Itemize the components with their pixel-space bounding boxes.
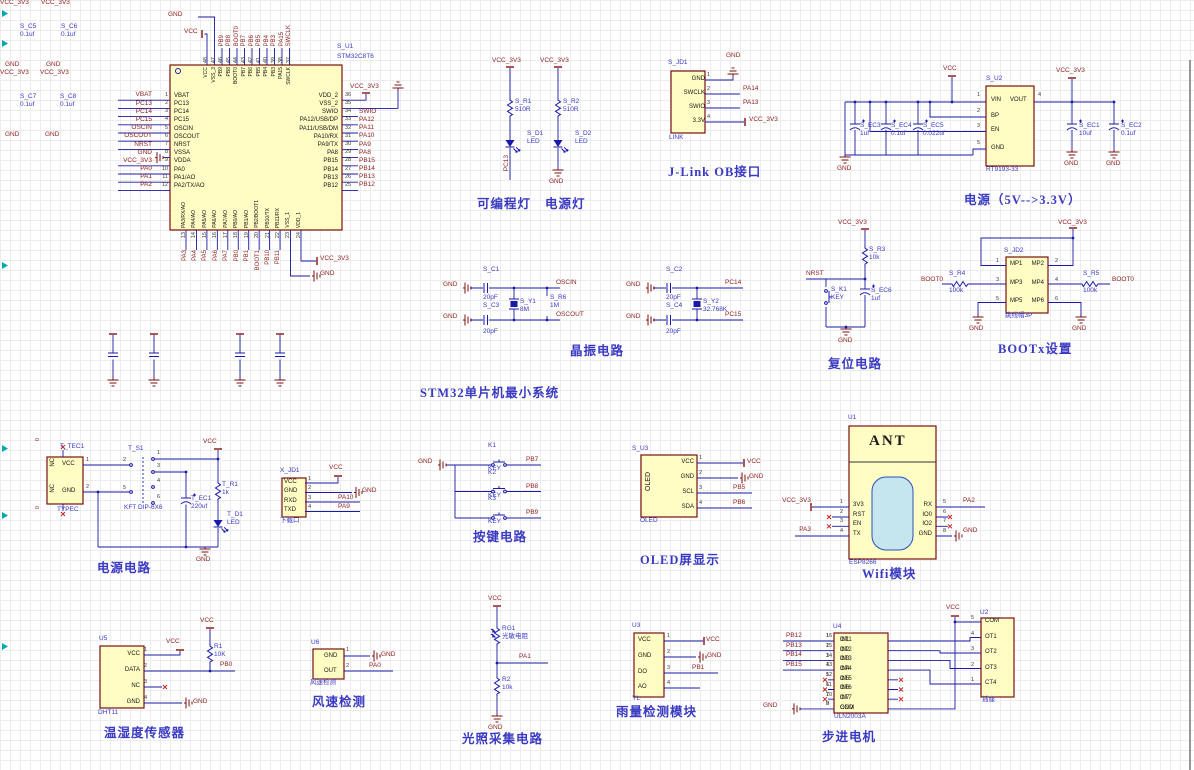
refdes-label: U3 — [632, 623, 640, 630]
net-label: BOOT1 — [255, 250, 261, 270]
pin-name: SCL — [682, 489, 694, 495]
net-label: PA10 — [359, 133, 374, 140]
pin-number: 11 — [162, 175, 168, 181]
pin-name: PA10/RX — [314, 134, 338, 140]
net-label: PB6 — [249, 35, 255, 46]
value-label: LED — [527, 139, 540, 146]
value-label: 10k — [869, 255, 879, 262]
pin-number: 22 — [276, 232, 282, 238]
jlink-pin-rows: GND1SWCLK2PA14SWIO3PA133.3V4 — [671, 72, 766, 128]
pin-name: NRST — [174, 142, 190, 148]
pin-name: PC15 — [174, 117, 189, 123]
net-label: PA4 — [192, 250, 198, 261]
net-label: GND — [549, 179, 563, 186]
pin-number: 29 — [345, 150, 351, 156]
section-caption: 温湿度传感器 — [104, 727, 185, 740]
mcu-top-pin-names: VCCVSS_3PB9PB8BOOT0PB7PB6PB5PB4PB3PA15SW… — [203, 67, 293, 107]
net-label: GND — [45, 132, 59, 139]
pin-number: 1 — [346, 648, 349, 654]
net-label: PB0 — [220, 662, 232, 669]
pin-name: BP — [991, 113, 999, 119]
bootx-jumper-rows: 1MP1MP223MP3MP445MP5MP66 — [1006, 257, 1048, 313]
part-label: DHT11 — [98, 710, 118, 717]
pin-number: 1 — [86, 458, 89, 464]
net-label: VCC_3V3 — [0, 0, 29, 7]
pin-name: PA12/USB/DP — [300, 117, 338, 123]
net-label: PA9 — [359, 142, 371, 149]
net-label: PA9 — [338, 504, 350, 511]
component-name: LINK — [669, 135, 683, 142]
pin-name: GND — [324, 653, 337, 659]
pin-number: 18 — [234, 232, 240, 238]
net-label: BOOT0 — [1112, 277, 1134, 284]
refdes-label: S_C6 — [61, 24, 77, 31]
net-label: VCC_3V3 — [40, 70, 69, 77]
pin-name: VOUT — [1010, 97, 1027, 103]
pin-number: 35 — [345, 101, 351, 107]
refdes-label: RG1 — [502, 626, 515, 633]
pin-number: 30 — [345, 142, 351, 148]
refdes-label: S_R1 — [515, 99, 531, 106]
pin-number: 6 — [1055, 297, 1058, 303]
pin-number: 23 — [286, 232, 292, 238]
net-label: PA10 — [338, 495, 353, 502]
section-caption: 复位电路 — [828, 358, 882, 371]
net-label: VCC — [166, 639, 180, 646]
part-label: RT9193-33 — [986, 167, 1018, 174]
net-label: PB13 — [786, 643, 802, 650]
net-label: PA1 — [140, 174, 152, 181]
pin-name: OT2 — [985, 649, 997, 655]
net-label: SWCLK — [286, 25, 292, 46]
pin-name: PA2/TX/AO — [174, 183, 205, 189]
pin-name: EN — [991, 127, 999, 133]
pin-number: 4 — [667, 681, 670, 687]
pin-number: 5 — [165, 126, 168, 132]
wifi-right-nets: PA2GND — [936, 502, 1006, 541]
pin-name: PA5/AO — [203, 210, 208, 228]
pin-number: 12 — [162, 183, 168, 189]
net-label: PB7 — [526, 457, 538, 464]
value-label: 1M — [550, 303, 559, 310]
pin-name: VCC — [638, 637, 651, 643]
pin-number: 4 — [840, 529, 843, 535]
net-label: GND — [838, 338, 852, 345]
pin-name: PB11/RX — [276, 208, 281, 228]
pin-number: 39 — [272, 57, 278, 63]
pin-name: VCC — [62, 461, 75, 467]
pin-number: 1 — [308, 477, 311, 483]
net-label: BOOT0 — [234, 26, 240, 46]
net-label: PB11 — [275, 250, 281, 264]
pin-number: 37 — [287, 57, 293, 63]
section-caption: 风速检测 — [312, 696, 366, 709]
pin-number: 5 — [123, 486, 126, 492]
value-label: KEY — [831, 295, 844, 302]
dht-pin-rows: VCC1DATA2NC3GND4 — [100, 647, 160, 711]
part-label: STM32C8T6 — [337, 54, 374, 61]
pin-number: 2 — [308, 486, 311, 492]
value-label: 20pF — [666, 329, 681, 336]
component-name: 下载口 — [280, 518, 300, 525]
pin-number: 3 — [971, 647, 974, 653]
net-label: VCC_3V3 — [320, 256, 349, 263]
pin-name: NC — [50, 484, 56, 493]
pin-name: GND — [991, 145, 1004, 151]
refdes-label: S_C3 — [483, 303, 499, 310]
net-label: PB12 — [786, 633, 802, 640]
refdes-label: S_EC5 — [923, 123, 944, 130]
pin-name: SWCLK — [287, 67, 292, 85]
pin-number: 1 — [977, 93, 980, 99]
pin-name: PA0 — [174, 167, 185, 173]
pin-number: 2 — [977, 109, 980, 115]
net-label: GND — [837, 166, 851, 173]
refdes-label: S_D2 — [575, 131, 591, 138]
pin-number: 42 — [249, 57, 255, 63]
net-label: PB1 — [692, 665, 704, 672]
value-label: 100k — [1083, 288, 1097, 295]
pin-number: 3 — [707, 101, 710, 107]
value-label: 510R — [563, 107, 579, 114]
pin-name: PB12 — [323, 183, 338, 189]
net-label: PC13 — [504, 155, 511, 171]
pin-name: PC13 — [174, 101, 189, 107]
net-label: GND — [626, 282, 640, 289]
value-label: 510R — [515, 107, 531, 114]
net-label: VCC_3V3 — [838, 220, 867, 227]
pin-number: 6 — [157, 495, 160, 501]
net-label: GND — [963, 528, 977, 535]
pin-number: 1 — [971, 678, 974, 684]
pin-name: PA6/AO — [213, 210, 218, 228]
pin-number: 2 — [1055, 259, 1058, 265]
net-label: NRST — [806, 271, 824, 278]
value-label: 光敏电阻 — [502, 634, 528, 641]
canvas-edge — [1189, 60, 1191, 770]
net-label: SWIO — [359, 109, 376, 116]
net-label: 0 — [36, 506, 42, 509]
pin-name: BOOT0 — [234, 67, 239, 84]
pin-number: 3 — [165, 109, 168, 115]
value-label: 32.768K — [703, 307, 727, 314]
refdes-label: S_JD2 — [1004, 248, 1024, 255]
pin-name: VSSA — [174, 150, 190, 156]
refdes-label: S_U3 — [632, 446, 648, 453]
net-label: PA12 — [359, 117, 374, 124]
net-label: VCC_3V3 — [1056, 68, 1085, 75]
pin-name: SWIO — [322, 109, 338, 115]
pin-number: 13 — [182, 232, 188, 238]
pin-number: 32 — [345, 126, 351, 132]
pin-number: 1 — [707, 73, 710, 79]
pin-name: VCC — [127, 651, 140, 657]
mcu-right-pin-rows: 363534SWIO33PA1232PA1131PA1030PA929PA828… — [342, 92, 422, 190]
net-label: PA6 — [213, 250, 219, 261]
pin-name: GND — [62, 488, 75, 494]
pin-number: 4 — [1055, 278, 1058, 284]
pin-number: 38 — [279, 57, 285, 63]
pin-number: 4 — [165, 117, 168, 123]
pin-number: 1 — [144, 648, 147, 654]
net-label: GND — [626, 314, 640, 321]
pin-name: IO0 — [922, 512, 932, 518]
pin-number: 4 — [144, 696, 147, 702]
pin-number: 15 — [203, 232, 209, 238]
refdes-label: S_R4 — [949, 271, 965, 278]
refdes-label: S_C1 — [483, 267, 499, 274]
pin-number: 26 — [345, 175, 351, 181]
pin-number: 45 — [227, 57, 233, 63]
refdes-label: S_EC3 — [860, 123, 881, 130]
value-label: 0.1uf — [20, 32, 34, 39]
wifi-left-nets: VCC_3V3PA3 — [781, 502, 849, 541]
net-label: VCC_3V3 — [0, 70, 29, 77]
net-label: PA2 — [963, 498, 975, 505]
pin-number: 3 — [667, 666, 670, 672]
refdes-label: T_R1 — [222, 482, 238, 489]
net-label: PB0 — [234, 250, 240, 261]
pin-number: 5 — [977, 141, 980, 147]
section-caption: 晶振电路 — [570, 345, 624, 358]
net-label: PA5 — [202, 250, 208, 261]
value-label: 0.1uf — [61, 32, 75, 39]
net-label: VCC_3V3 — [123, 158, 152, 165]
net-label: PA13 — [743, 100, 758, 107]
pin-name: PB6 — [249, 67, 254, 76]
pin-number: 24 — [297, 232, 303, 238]
value-label: KEY — [488, 519, 501, 526]
refdes-label: T_D1 — [227, 512, 243, 519]
pin-number: 2 — [123, 458, 126, 464]
section-caption: 按键电路 — [473, 531, 527, 544]
pin-name: TXD — [284, 507, 296, 513]
net-label: PB4 — [264, 35, 270, 46]
pin-number: 14 — [192, 232, 198, 238]
pin-name: COM — [985, 618, 999, 624]
refdes-label: U5 — [99, 636, 107, 643]
refdes-label: K1 — [488, 443, 496, 450]
pin-name: VBAT — [174, 93, 189, 99]
pin-name: AO — [638, 684, 647, 690]
pin-number: 5 — [971, 616, 974, 622]
net-label: PB6 — [733, 500, 745, 507]
mcu-bottom-pin-numbers: 131415161718192021222324 — [180, 232, 305, 244]
pin-name: PA1/AO — [174, 175, 195, 181]
pin-name: OT1 — [985, 634, 997, 640]
pin-number: 43 — [242, 57, 248, 63]
pin-number: 1 — [165, 93, 168, 99]
net-label: PB13 — [359, 174, 375, 181]
refdes-label: X_JD1 — [280, 468, 300, 475]
refdes-label: T_EC1 — [191, 496, 211, 503]
pin-number: 3 — [996, 278, 999, 284]
value-label: 10uf — [1079, 131, 1092, 138]
pin-name: PB5 — [257, 67, 262, 76]
net-label: VCC — [184, 29, 198, 36]
net-label: GND — [193, 699, 207, 706]
net-label: PB5 — [733, 485, 745, 492]
value-label: 100k — [949, 288, 963, 295]
net-label: GND — [5, 62, 19, 69]
pin-number: 3 — [157, 464, 160, 470]
pin-number: 12 — [826, 673, 899, 679]
pin-name: GND — [127, 699, 140, 705]
oled-pin-rows: VCC1GND2SCL3PB5SDA4PB6 — [672, 456, 784, 516]
net-label: PB5 — [256, 35, 262, 46]
refdes-label: S_R5 — [1083, 271, 1099, 278]
pin-number: 36 — [345, 93, 351, 99]
pin-name: MP4 — [1032, 280, 1044, 286]
pin-number: 17 — [224, 232, 230, 238]
refdes-label: S_R3 — [869, 247, 885, 254]
net-label: GND — [418, 459, 432, 466]
net-label: VCC — [943, 66, 957, 73]
net-label: GND — [1106, 161, 1120, 168]
part-label: ESP8266 — [849, 560, 876, 567]
net-label: PB8 — [226, 35, 232, 46]
pin-name: PB13 — [323, 175, 338, 181]
net-label: PA7 — [223, 250, 229, 261]
net-label: GND — [381, 652, 395, 659]
pin-name: PB4 — [264, 67, 269, 76]
pin-name: VIN — [991, 97, 1001, 103]
refdes-label: T_TEC1 — [60, 444, 84, 451]
pin-name: MP1 — [1010, 261, 1022, 267]
pin-number: 14 — [826, 654, 899, 660]
pin-number: 2 — [346, 664, 349, 670]
pin-name: MP3 — [1010, 280, 1022, 286]
mcu-top-net-labels: PB9PB8BOOT0PB7PB6PB5PB4PB3PA15SWCLK — [203, 12, 293, 46]
pin-number: 2 — [971, 663, 974, 669]
pin-number: 3 — [699, 486, 702, 492]
refdes-label: S_U2 — [986, 76, 1002, 83]
net-label: PB8 — [526, 484, 538, 491]
pin-name: OUT — [324, 668, 337, 674]
pin-name: GND — [692, 76, 705, 82]
switch-contacts — [130, 458, 155, 505]
pin-number: 46 — [219, 57, 225, 63]
net-label: PC13 — [136, 101, 152, 108]
refdes-label: R2 — [502, 677, 510, 684]
pin-name: PA8 — [327, 150, 338, 156]
section-caption: 雨量检测模块 — [616, 706, 697, 719]
net-label: PA1 — [519, 654, 531, 661]
section-caption: 电源灯 — [545, 198, 586, 211]
net-label: GND — [1072, 326, 1086, 333]
refdes-label: S_D1 — [527, 131, 543, 138]
refdes-label: K3 — [488, 496, 496, 503]
net-label: GND — [5, 132, 19, 139]
pin-name: PB3 — [272, 67, 277, 76]
net-label: BOOT0 — [921, 277, 943, 284]
value-label: 1uf — [871, 296, 880, 303]
section-caption: 光照采集电路 — [462, 733, 543, 746]
pin-number: 5 — [996, 297, 999, 303]
pin-number: 4 — [971, 632, 974, 638]
pin-name: DO — [638, 669, 647, 675]
pin-number: 9 — [826, 702, 899, 708]
net-label: PB14 — [359, 166, 375, 173]
net-label: GND — [1064, 161, 1078, 168]
value-label: 0.1uf — [891, 131, 905, 138]
pin-name: OSCIN — [174, 126, 193, 132]
net-label: PC14 — [136, 109, 152, 116]
pin-number: 34 — [345, 109, 351, 115]
net-label: GND — [443, 282, 457, 289]
pin-name: PB1/AO — [245, 210, 250, 228]
pin-number: 7 — [165, 142, 168, 148]
pin-name: PA4/AO — [192, 210, 197, 228]
mcu-bottom-net-labels: PA3PA4PA5PA6PA7PB0PB1BOOT1PB10PB11 — [180, 250, 305, 290]
net-label: PA14 — [743, 86, 758, 93]
value-label: 220uf — [191, 504, 207, 511]
value-label: 0.022uf — [923, 131, 945, 138]
pin-number: 44 — [234, 57, 240, 63]
pin-number: 4 — [707, 115, 710, 121]
pin-number: 20 — [255, 232, 261, 238]
net-label: PB9 — [526, 510, 538, 517]
net-label: GND — [168, 12, 182, 19]
pin-name: PB8 — [227, 67, 232, 76]
pin-name: PA11/USB/DM — [299, 126, 338, 132]
refdes-label: S_C7 — [20, 94, 36, 101]
value-label: 10k — [502, 685, 512, 692]
net-label: VCC_3V3 — [1058, 220, 1087, 227]
net-label: PB9 — [219, 35, 225, 46]
pin-name: OSCOUT — [174, 134, 200, 140]
net-label: PA0 — [140, 166, 152, 173]
section-caption: 电源电路 — [97, 562, 151, 575]
net-label: GND — [196, 557, 210, 564]
pin-number: 10 — [826, 693, 899, 699]
pin-name: PB10/TX — [266, 208, 271, 228]
pin-number: 3 — [308, 496, 311, 502]
pin-name: VDDA — [174, 158, 191, 164]
refdes-label: S_C8 — [60, 94, 76, 101]
pin-name: PB2/BOOT1 — [255, 200, 260, 228]
pin-name: GND — [638, 653, 651, 659]
value-label: 20pF — [666, 295, 681, 302]
net-label: 0 — [36, 438, 42, 441]
net-label: VCC_3V3 — [492, 58, 521, 65]
wifi-right-pins: RX5IO06IO27GND8 — [849, 502, 936, 541]
wind-pin-rows: GND1OUT2 — [313, 649, 363, 680]
refdes-label: S_U1 — [337, 44, 353, 51]
refdes-label: S_EC1 — [1079, 123, 1100, 130]
refdes-label: K2 — [488, 470, 496, 477]
net-label: VBAT — [136, 92, 153, 99]
section-caption: BOOTx设置 — [998, 343, 1072, 356]
net-label: VCC — [203, 439, 217, 446]
pin-name: SDA — [682, 504, 694, 510]
net-label: PB14 — [786, 652, 802, 659]
pin-name: GND — [681, 474, 694, 480]
pin-name: VSS_1 — [286, 212, 291, 228]
net-label: PA2 — [140, 182, 152, 189]
pin-number: 11 — [826, 683, 899, 689]
net-label: VCC_3V3 — [540, 58, 569, 65]
net-label: VCC_3V3 — [350, 84, 379, 91]
pin-name: RX — [924, 502, 932, 508]
pin-name: 3.3V — [693, 118, 705, 124]
net-label: PA11 — [359, 125, 374, 132]
pin-number: 3 — [144, 680, 147, 686]
refdes-label: U1 — [848, 415, 856, 422]
net-label: VCC_3V3 — [782, 498, 811, 505]
mcu-top-pin-numbers: 484746454443424140393837 — [203, 49, 293, 63]
net-label: GND — [138, 150, 152, 157]
